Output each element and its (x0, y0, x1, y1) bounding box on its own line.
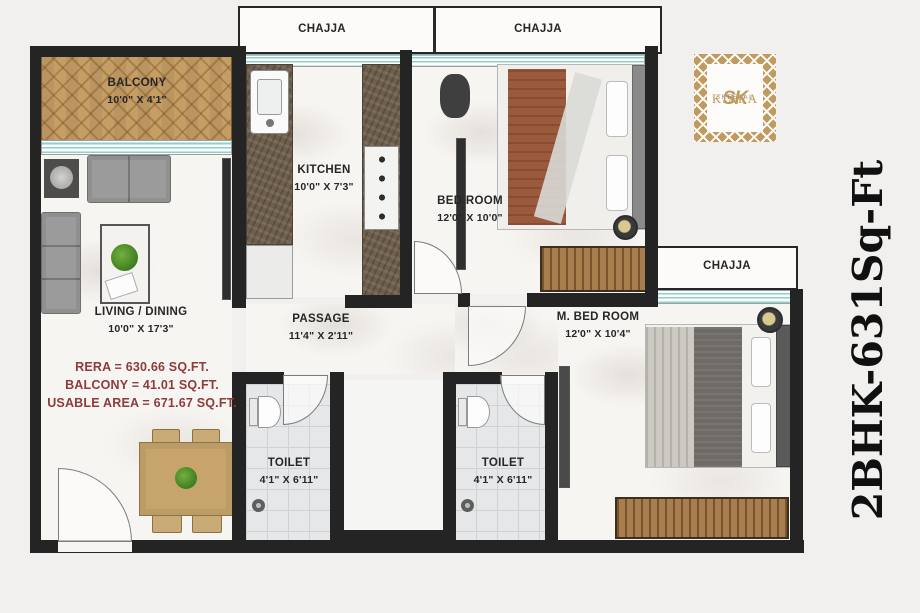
passage-label: PASSAGE (292, 313, 349, 325)
wall-toilet2-right (545, 372, 558, 542)
bed-headboard (776, 325, 791, 467)
toilet2-dims: 4'1" X 6'11" (474, 474, 533, 486)
toilet1-wc-tank (249, 398, 258, 426)
area-usable: USABLE AREA = 671.67 SQ.FT. (47, 396, 237, 410)
chajja-label-top-left: CHAJJA (298, 23, 346, 35)
wall-master-top (527, 293, 658, 307)
kitchen-dims: 10'0" X 7'3" (294, 181, 353, 193)
plan-title-vertical: 2BHK-631Sq-Ft (840, 140, 896, 540)
bedroom-bed (497, 64, 647, 230)
kitchen-sink (250, 70, 289, 134)
sofa-l-shaped (41, 212, 81, 314)
wall-toilet2-top (456, 372, 502, 384)
master-bed (645, 324, 792, 468)
master-wardrobe (615, 497, 789, 539)
bedroom-dims: 12'0" X 10'0" (437, 212, 502, 224)
bed-blanket-dark (694, 327, 742, 467)
wall-kitchen-bottom (345, 295, 412, 308)
floor-plan-canvas: CHAJJA CHAJJA CHAJJA BALCONY 10'0" X 4'1… (0, 0, 920, 613)
wall-bedroom-right (645, 46, 658, 307)
area-balcony: BALCONY = 41.01 SQ.FT. (65, 378, 219, 392)
sofa-two-seater (87, 155, 171, 203)
wall-shaft-left (330, 372, 344, 542)
balcony-window (41, 140, 232, 155)
bed-headboard (632, 65, 646, 229)
bedroom-lamp (613, 215, 638, 240)
balcony-label: BALCONY (108, 77, 167, 89)
toilet2-shower-head (461, 499, 474, 512)
master-lamp (757, 307, 783, 333)
wall-bedroom-bottom-stub (458, 293, 470, 307)
bedroom-wardrobe (540, 246, 647, 292)
entry-opening (58, 541, 132, 552)
master-bedroom-label: M. BED ROOM (557, 311, 640, 323)
living-tv-panel (222, 158, 231, 300)
dining-chair (192, 515, 222, 533)
toilet2-label: TOILET (482, 457, 524, 469)
brand-name: KIARA (712, 91, 758, 106)
bed-pillow (751, 337, 771, 387)
kitchen-label: KITCHEN (297, 164, 350, 176)
dining-chair (152, 515, 182, 533)
brand-logo-inner: SK SHEETAL KIARA (707, 64, 763, 132)
side-table (50, 166, 73, 189)
master-bedroom-dims: 12'0" X 10'4" (565, 328, 630, 340)
bed-pillow (606, 155, 628, 211)
wall-kitchen-bedroom (400, 50, 412, 308)
wall-toilet1-top (246, 372, 284, 384)
toilet1-shower-head (252, 499, 265, 512)
wall-left-outer (30, 46, 41, 553)
wall-shaft-bottom (330, 530, 456, 542)
passage-dims: 11'4" X 2'11" (289, 330, 353, 342)
chajja-label-right: CHAJJA (703, 260, 751, 272)
balcony-dims: 10'0" X 4'1" (107, 94, 166, 106)
living-dining-dims: 10'0" X 17'3" (108, 323, 173, 335)
toilet1-dims: 4'1" X 6'11" (260, 474, 319, 486)
living-dining-label: LIVING / DINING (95, 306, 188, 318)
kitchen-fridge (246, 245, 293, 299)
bed-pillow (606, 81, 628, 137)
chajja-top-divider (433, 8, 436, 52)
gas-stove (364, 146, 399, 230)
chajja-label-top-right: CHAJJA (514, 23, 562, 35)
wall-living-kitchen (232, 46, 246, 308)
dining-table-plant (175, 467, 197, 489)
toilet2-wc-tank (458, 398, 467, 426)
brand-logo: SK SHEETAL KIARA (694, 54, 776, 142)
wall-shaft-right (443, 372, 456, 542)
wall-balcony-top (30, 46, 246, 57)
duct-shaft (344, 380, 443, 538)
toilet1-label: TOILET (268, 457, 310, 469)
wall-master-right (790, 289, 803, 553)
bedroom-label: BED ROOM (437, 195, 503, 207)
coffee-table-plant (111, 244, 138, 271)
bed-pillow (751, 403, 771, 453)
master-tv-panel (559, 366, 570, 488)
master-window (650, 290, 791, 304)
area-rera: RERA = 630.66 SQ.FT. (75, 360, 209, 374)
bed-blanket-light (646, 327, 694, 467)
bedroom-chair (440, 74, 470, 118)
